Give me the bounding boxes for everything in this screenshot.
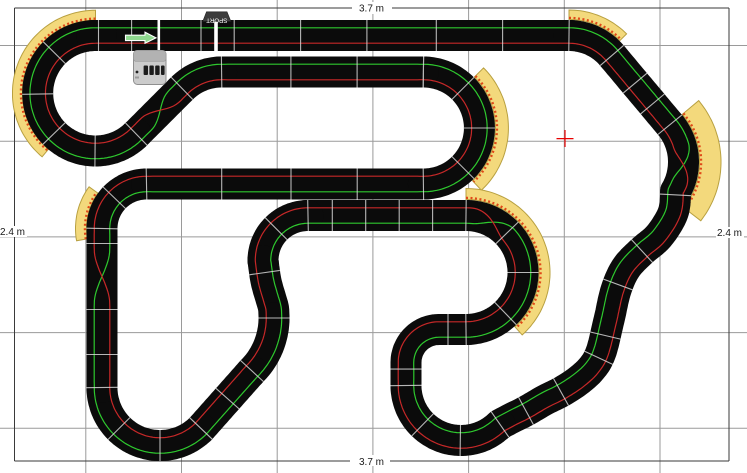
svg-text:SPORT: SPORT — [206, 17, 227, 24]
svg-text:3.7 m: 3.7 m — [359, 4, 384, 15]
svg-text:2.4 m: 2.4 m — [0, 227, 25, 238]
svg-text:3.7 m: 3.7 m — [359, 457, 384, 468]
svg-text:2.4 m: 2.4 m — [717, 228, 742, 239]
